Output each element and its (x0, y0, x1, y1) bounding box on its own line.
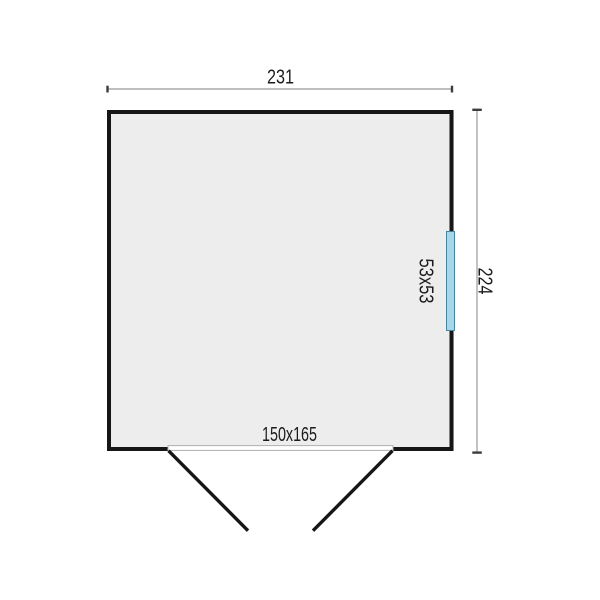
door-swing-right (313, 451, 393, 531)
top-dimension-tick-right (451, 86, 453, 93)
floor-plan-canvas: 231 224 53x53 150x165 (0, 0, 600, 600)
top-dimension-tick-left (106, 86, 108, 93)
right-dimension: 224 (472, 109, 495, 454)
right-dimension-tick-bottom (472, 451, 482, 453)
window-size-label: 53x53 (415, 259, 437, 304)
top-dimension: 231 (106, 67, 453, 93)
right-dimension-tick-top (472, 109, 482, 111)
floor-area (107, 110, 454, 451)
window (447, 232, 455, 331)
door-swing-left (169, 451, 249, 531)
top-dimension-label: 231 (267, 67, 294, 89)
floor-plan-diagram: 231 224 53x53 150x165 (0, 0, 600, 600)
door-size-label: 150x165 (262, 424, 317, 446)
door-threshold (168, 446, 393, 451)
right-dimension-label: 224 (474, 268, 496, 295)
